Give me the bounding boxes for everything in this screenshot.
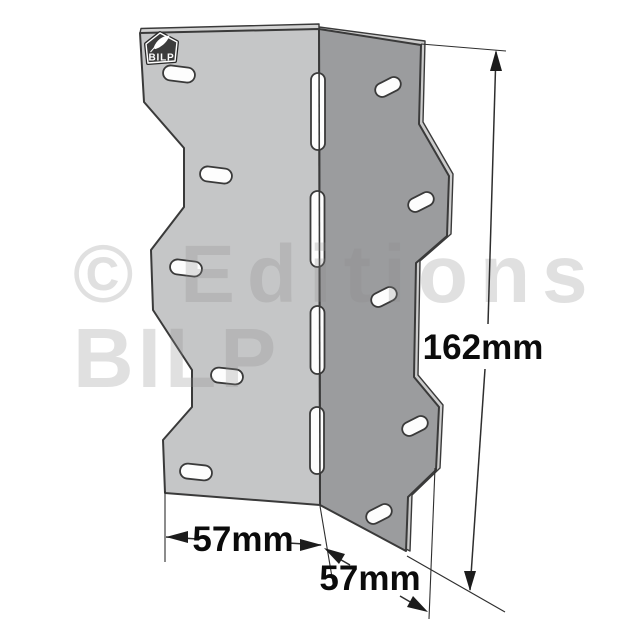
dim-width-right-label: 57mm — [319, 559, 420, 598]
fold-slot — [310, 407, 324, 474]
arrowhead-downright-icon — [407, 596, 428, 612]
extension-line-right-edge — [429, 468, 435, 619]
extension-line-top-right — [421, 44, 506, 51]
illustration-svg: BILP © Editions BILP 162mm 57mm — [0, 0, 640, 640]
arrowhead-right-icon — [300, 539, 322, 551]
bilp-logo-text: BILP — [149, 53, 175, 64]
bracket-technical-illustration: BILP © Editions BILP 162mm 57mm — [0, 0, 640, 640]
arrowhead-up-icon — [490, 50, 502, 71]
extension-line-bottom-right — [407, 556, 505, 612]
dimension-width-left: 57mm — [166, 520, 322, 559]
watermark-line1: © Editions — [73, 229, 600, 320]
arrowhead-down-icon — [464, 571, 476, 591]
dimension-width-right: 57mm — [319, 548, 428, 612]
watermark-line2: BILP — [73, 311, 280, 405]
dimension-height: 162mm — [423, 50, 544, 591]
dimension-line-height-lower — [470, 369, 485, 590]
arrowhead-left-icon — [166, 531, 188, 543]
mounting-slot — [162, 65, 196, 84]
dim-width-left-label: 57mm — [192, 520, 293, 559]
mounting-slot — [179, 463, 212, 481]
dim-height-label: 162mm — [423, 328, 544, 367]
fold-slot — [311, 73, 325, 150]
mounting-slot — [199, 166, 233, 185]
